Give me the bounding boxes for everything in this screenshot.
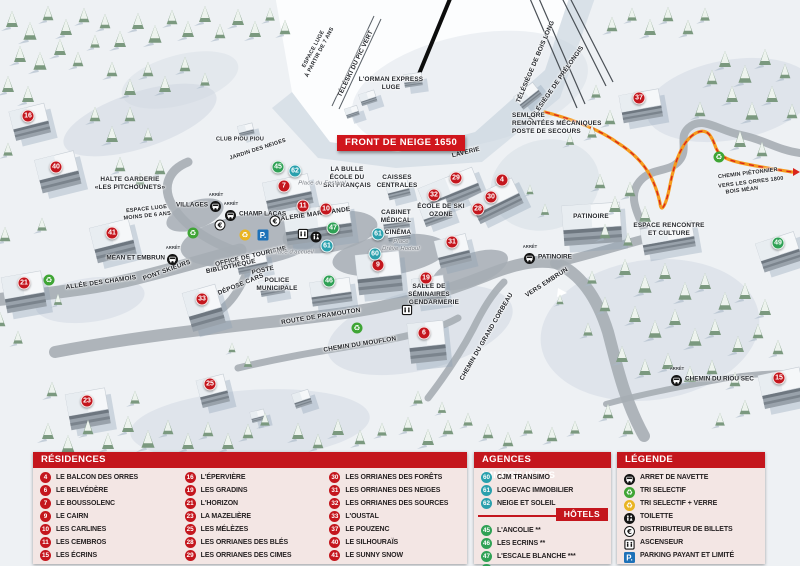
legend-row-r: 29LES ORRIANES DES CIMES xyxy=(178,549,323,562)
legend-label: LE BOUSSOLENC xyxy=(56,500,115,507)
bus-stop-arret-label: ARRÊT xyxy=(166,245,180,250)
legend-label: LE BALCON DES ORRES xyxy=(56,474,138,481)
bus-stop-chemin-du-riou-sec: ARRÊTCHEMIN DU RIOU SEC xyxy=(671,373,683,385)
bus-stop-name: PATINOIRE xyxy=(538,254,572,261)
svg-text:♻: ♻ xyxy=(242,231,249,240)
legend-row-legende: ♻TRI SELECTIF + VERRE xyxy=(617,497,765,510)
map-label-espace-luge: ESPACE LUGE à partir de 7 ans xyxy=(298,23,336,79)
legend-badge-31: 31 xyxy=(329,485,340,496)
legend-label: L'ESCALE BLANCHE *** xyxy=(497,553,576,560)
svg-text:P.: P. xyxy=(626,553,632,562)
legend-badge-10: 10 xyxy=(40,524,51,535)
map-marker-61: 61 xyxy=(372,228,385,241)
bus-stop-arret-label: ARRÊT xyxy=(523,244,537,249)
euro-icon: € xyxy=(624,524,635,535)
map-label-police: POLICE MUNICIPALE xyxy=(256,277,297,293)
legend-label: LES ORRIANES DES NEIGES xyxy=(345,487,440,494)
legend-label: LE POUZENC xyxy=(345,526,389,533)
panel-hotels-title: HÔTELS xyxy=(556,508,608,521)
legend-label: NEIGE ET SOLEIL xyxy=(497,500,555,507)
legend-row-r: 25LES MÉLÈZES xyxy=(178,523,323,536)
legend-label: TRI SELECTIF + VERRE xyxy=(640,500,717,507)
svg-text:€: € xyxy=(272,217,278,225)
legend-row-r: 16L'ÉPERVIÈRE xyxy=(178,471,323,484)
legend-badge-37: 37 xyxy=(329,524,340,535)
legend-badge-23: 23 xyxy=(185,511,196,522)
map-marker-62: 62 xyxy=(289,165,302,178)
legend-label: LES GRADINS xyxy=(201,487,248,494)
svg-text:♻: ♻ xyxy=(354,324,361,333)
legend-label: TOILETTE xyxy=(640,513,673,520)
legend-label: CJM TRANSIMO xyxy=(497,474,550,481)
map-marker-11: 11 xyxy=(297,200,310,213)
recycle-icon: ♻ xyxy=(714,152,725,163)
panel-residences-title: RÉSIDENCES xyxy=(33,452,467,468)
map-label-ecole-de-ski: ÉCOLE DE SKI OZONE xyxy=(417,203,465,219)
map-marker-41: 41 xyxy=(106,227,119,240)
legend-badge-15: 15 xyxy=(40,550,51,561)
svg-text:P.: P. xyxy=(260,231,266,240)
bus-icon xyxy=(225,208,236,225)
bus-stop-name: MÉAN ET EMBRUN xyxy=(106,255,165,262)
map-label-chemin-du-mouflon: CHEMIN DU MOUFLON xyxy=(323,335,397,354)
legend-badge-21: 21 xyxy=(185,498,196,509)
bus-stop-mean-et-embrun: ARRÊTMÉAN ET EMBRUN xyxy=(167,252,179,264)
legend-label: LES ORRIANES DES CIMES xyxy=(201,552,292,559)
tri-verre-icon: ♻ xyxy=(240,230,251,241)
legend-row-a: 61LOGEVAC IMMOBILIER xyxy=(474,484,611,497)
map-marker-4: 4 xyxy=(496,174,509,187)
legend-badge-11: 11 xyxy=(40,537,51,548)
map-label-place-du-festival: Place du Festival xyxy=(298,180,346,187)
recycle-icon: ♻ xyxy=(188,228,199,239)
legend-label: LES ORRIANES DES BLÉS xyxy=(201,539,288,546)
map-marker-6: 6 xyxy=(418,327,431,340)
bus-icon xyxy=(167,252,178,269)
residences-column-1: 4LE BALCON DES ORRES6LE BELVÉDÈRE7LE BOU… xyxy=(33,471,178,562)
elevator-icon xyxy=(298,229,309,240)
legend-label: LES CEMBROS xyxy=(56,539,106,546)
toilet-icon xyxy=(624,511,635,522)
legend-label: LES ECRINS ** xyxy=(497,540,545,547)
elevator-icon xyxy=(402,305,413,316)
map-label-vers-embrun: VERS EMBRUN xyxy=(524,266,570,300)
panel-legende: LÉGENDE ARRET DE NAVETTE♻TRI SELECTIF♻TR… xyxy=(617,452,765,564)
legend-label: LES MÉLÈZES xyxy=(201,526,249,533)
svg-text:♻: ♻ xyxy=(626,501,633,510)
map-label-chemin-du-grand-corbeau: CHEMIN DU GRAND CORBEAU xyxy=(459,292,516,383)
legend-row-r: 11LES CEMBROS xyxy=(33,536,178,549)
map-marker-19: 19 xyxy=(420,272,433,285)
legend-label: LA MAZELIÈRE xyxy=(201,513,251,520)
legend-badge-60: 60 xyxy=(481,472,492,483)
map-label-espace-rencontre: ESPACE RENCONTRE ET CULTURE xyxy=(633,222,704,238)
legend-row-h: 47L'ESCALE BLANCHE *** xyxy=(474,550,611,563)
legend-label: LE SUNNY SNOW xyxy=(345,552,403,559)
legend-row-r: 23LA MAZELIÈRE xyxy=(178,510,323,523)
map-marker-16: 16 xyxy=(22,110,35,123)
legend-badge-16: 16 xyxy=(185,472,196,483)
bus-stop-arret-label: ARRÊT xyxy=(670,366,684,371)
legend-label: LE CAIRN xyxy=(56,513,88,520)
euro-icon: € xyxy=(215,220,226,231)
map-marker-47: 47 xyxy=(327,222,340,235)
map-marker-23: 23 xyxy=(81,395,94,408)
residences-column-3: 30LES ORRIANES DES FORÊTS31LES ORRIANES … xyxy=(322,471,467,562)
residences-list: 4LE BALCON DES ORRES6LE BELVÉDÈRE7LE BOU… xyxy=(33,468,467,562)
legend-row-r: 4LE BALCON DES ORRES xyxy=(33,471,178,484)
map-marker-37: 37 xyxy=(633,92,646,105)
legend-row-r: 37LE POUZENC xyxy=(322,523,467,536)
legend-badge-47: 47 xyxy=(481,551,492,562)
map-marker-40: 40 xyxy=(50,161,63,174)
map-label-allee-des-chamois: ALLÉE DES CHAMOIS xyxy=(65,274,137,292)
map-label-halte-garderie: HALTE GARDERIE «LES PITCHOUNETS» xyxy=(95,176,166,192)
hotels-divider: HÔTELS xyxy=(474,511,611,521)
bus-icon xyxy=(524,251,535,268)
legend-label: ARRET DE NAVETTE xyxy=(640,474,708,481)
map-label-club-piou-piou: CLUB PIOU PIOU xyxy=(216,137,264,144)
legend-label: ASCENSEUR xyxy=(640,539,683,546)
legend-badge-28: 28 xyxy=(185,537,196,548)
map-marker-32: 32 xyxy=(428,189,441,202)
legend-label: L'OUSTAL xyxy=(345,513,378,520)
legend-row-r: 10LES CARLINES xyxy=(33,523,178,536)
legend-row-r: 9LE CAIRN xyxy=(33,510,178,523)
tri-verre-icon: ♻ xyxy=(624,498,635,509)
legend-label: LES ÉCRINS xyxy=(56,552,97,559)
svg-text:♻: ♻ xyxy=(716,153,723,162)
legend-badge-40: 40 xyxy=(329,537,340,548)
map-marker-60: 60 xyxy=(369,248,382,261)
legend-row-r: 33L'OUSTAL xyxy=(322,510,467,523)
legend-row-r: 19LES GRADINS xyxy=(178,484,323,497)
legend-row-r: 30LES ORRIANES DES FORÊTS xyxy=(322,471,467,484)
front-de-neige-banner: FRONT DE NEIGE 1650 xyxy=(337,135,465,151)
legend-row-r: 32LES ORRIANES DES SOURCES xyxy=(322,497,467,510)
legend-row-r: 21L'HORIZON xyxy=(178,497,323,510)
map-label-route-de-pramouton: ROUTE DE PRAMOUTON xyxy=(281,307,361,327)
map-marker-28: 28 xyxy=(472,203,485,216)
legend-badge-6: 6 xyxy=(40,485,51,496)
map-marker-15: 15 xyxy=(773,372,786,385)
svg-text:♻: ♻ xyxy=(46,276,53,285)
legend-row-legende: ASCENSEUR xyxy=(617,536,765,549)
legend-label: LES CARLINES xyxy=(56,526,106,533)
legend-badge-33: 33 xyxy=(329,511,340,522)
legend-badge-41: 41 xyxy=(329,550,340,561)
svg-text:€: € xyxy=(626,528,632,536)
legend-badge-9: 9 xyxy=(40,511,51,522)
legend-label: L'ANCOLIE ** xyxy=(497,527,541,534)
legend-badge-45: 45 xyxy=(481,525,492,536)
legend-row-r: 6LE BELVÉDÈRE xyxy=(33,484,178,497)
bus-stop-champ-lacas: ARRÊTCHAMP LACAS xyxy=(225,208,237,220)
legende-list: ARRET DE NAVETTE♻TRI SELECTIF♻TRI SELECT… xyxy=(617,468,765,562)
bus-stop-arret-label: ARRÊT xyxy=(209,192,223,197)
map-marker-45: 45 xyxy=(272,161,285,174)
map-label-place-d-accueil: Place d'accueil xyxy=(272,249,314,256)
legend-row-r: 28LES ORRIANES DES BLÉS xyxy=(178,536,323,549)
legend-badge-19: 19 xyxy=(185,485,196,496)
map-marker-31: 31 xyxy=(446,236,459,249)
legend-row-legende: €DISTRIBUTEUR DE BILLETS xyxy=(617,523,765,536)
svg-text:♻: ♻ xyxy=(626,488,633,497)
bus-stop-patinoire: ARRÊTPATINOIRE xyxy=(524,251,536,263)
recycle-icon: ♻ xyxy=(624,485,635,496)
svg-text:♻: ♻ xyxy=(190,229,197,238)
svg-text:€: € xyxy=(217,221,223,229)
bus-icon xyxy=(671,373,682,390)
legend-row-h: 45L'ANCOLIE ** xyxy=(474,524,611,537)
bus-stop-name: CHEMIN DU RIOU SEC xyxy=(685,376,754,383)
map-marker-7: 7 xyxy=(278,180,291,193)
map-marker-61: 61 xyxy=(321,240,334,253)
map-label-cabinet: CABINET MÉDICAL xyxy=(381,209,412,225)
legend-label: LES ORRIANES DES SOURCES xyxy=(345,500,448,507)
map-marker-30: 30 xyxy=(485,191,498,204)
panel-residences: RÉSIDENCES 4LE BALCON DES ORRES6LE BELVÉ… xyxy=(33,452,467,564)
map-marker-21: 21 xyxy=(18,277,31,290)
map-label-espace-luge: ESPACE LUGE moins de 6 ans xyxy=(123,204,172,223)
legend-row-legende: ♻TRI SELECTIF xyxy=(617,484,765,497)
bus-icon xyxy=(210,199,221,216)
bus-stop-villages: ARRÊTVILLAGES xyxy=(210,199,222,211)
legend-label: DISTRIBUTEUR DE BILLETS xyxy=(640,526,733,533)
legend-badge-46: 46 xyxy=(481,538,492,549)
residences-column-2: 16L'ÉPERVIÈRE19LES GRADINS21L'HORIZON23L… xyxy=(178,471,323,562)
bus-stop-name: VILLAGES xyxy=(176,202,208,209)
legend-badge-61: 61 xyxy=(481,485,492,496)
legend-row-h: 46LES ECRINS ** xyxy=(474,537,611,550)
legend-badge-30: 30 xyxy=(329,472,340,483)
map-label-l-orman-express: L'ORMAN EXPRESS LUGE xyxy=(359,76,424,92)
legend-badge-32: 32 xyxy=(329,498,340,509)
legend-label: LE SILHOURAÏS xyxy=(345,539,398,546)
legend-row-r: 15LES ÉCRINS xyxy=(33,549,178,562)
map-label-gendarmerie: GENDARMERIE xyxy=(409,299,459,307)
legend-label: L'HORIZON xyxy=(201,500,238,507)
legend-row-r: 41LE SUNNY SNOW xyxy=(322,549,467,562)
panel-agences-title: AGENCES IMMOBILIÈRES xyxy=(474,452,611,468)
legend-row-legende: ARRET DE NAVETTE xyxy=(617,471,765,484)
panel-legende-title: LÉGENDE xyxy=(617,452,765,468)
recycle-icon: ♻ xyxy=(352,323,363,334)
map-marker-25: 25 xyxy=(204,378,217,391)
legend-label: L'ÉPERVIÈRE xyxy=(201,474,246,481)
legend-badge-25: 25 xyxy=(185,524,196,535)
map-label-patinoire: PATINOIRE xyxy=(573,213,609,221)
legend-badge-4: 4 xyxy=(40,472,51,483)
legend-row-r: 7LE BOUSSOLENC xyxy=(33,497,178,510)
bus-icon xyxy=(624,472,635,483)
legend-label: LOGEVAC IMMOBILIER xyxy=(497,487,573,494)
recycle-icon: ♻ xyxy=(44,275,55,286)
panel-agences-hotels: AGENCES IMMOBILIÈRES 60CJM TRANSIMO61LOG… xyxy=(474,452,611,564)
legend-label: LES ORRIANES DES FORÊTS xyxy=(345,474,442,481)
resort-map-page: HALTE GARDERIE «LES PITCHOUNETS»ESPACE L… xyxy=(0,0,800,566)
toilet-icon xyxy=(311,232,322,243)
map-marker-49: 49 xyxy=(772,237,785,250)
parking-icon: P. xyxy=(624,550,635,561)
legend-row-r: 40LE SILHOURAÏS xyxy=(322,536,467,549)
legend-row-r: 31LES ORRIANES DES NEIGES xyxy=(322,484,467,497)
legend-label: LE BELVÉDÈRE xyxy=(56,487,108,494)
map-marker-29: 29 xyxy=(450,172,463,185)
bus-stop-arret-label: ARRÊT xyxy=(224,201,238,206)
map-marker-46: 46 xyxy=(323,275,336,288)
legend-badge-7: 7 xyxy=(40,498,51,509)
hotels-list: 45L'ANCOLIE **46LES ECRINS **47L'ESCALE … xyxy=(474,521,611,566)
map-label-cinema: CINÉMA xyxy=(385,229,411,237)
map-marker-10: 10 xyxy=(320,203,333,216)
legend-badge-29: 29 xyxy=(185,550,196,561)
parking-icon: P. xyxy=(258,230,269,241)
euro-icon: € xyxy=(270,216,281,227)
map-label-place: Place Drève Hodoul xyxy=(382,239,420,253)
map-marker-33: 33 xyxy=(196,293,209,306)
legend-row-legende: P.PARKING PAYANT ET LIMITÉ xyxy=(617,549,765,562)
map-label-caisses: CAISSES CENTRALES xyxy=(377,174,418,190)
map-label-salle-de: SALLE DE SÉMINAIRES xyxy=(408,283,450,299)
legend-label: TRI SELECTIF xyxy=(640,487,686,494)
map-label-semlore: SEMLORE REMONTÉES MÉCANIQUES POSTE DE SE… xyxy=(512,112,602,136)
legend-label: PARKING PAYANT ET LIMITÉ xyxy=(640,552,734,559)
elevator-icon xyxy=(624,537,635,548)
legend-badge-62: 62 xyxy=(481,498,492,509)
map-label-galerie-marchande: GALERIE MARCHANDE xyxy=(275,206,351,224)
legend-row-legende: TOILETTE xyxy=(617,510,765,523)
